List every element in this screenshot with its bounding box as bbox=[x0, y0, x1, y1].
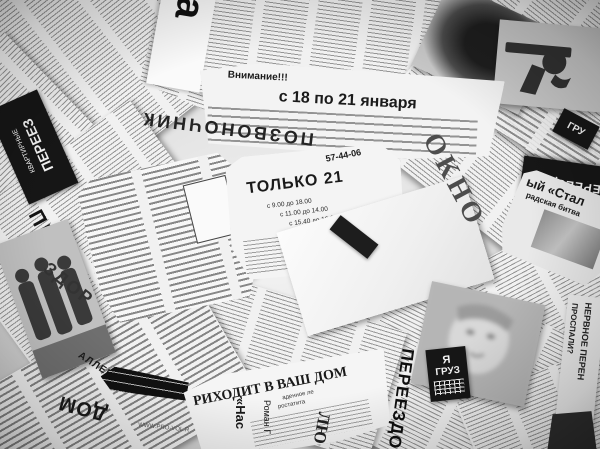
date-range-headline: с 18 по 21 января bbox=[278, 88, 417, 113]
prihodit-sub2: ростатита bbox=[277, 399, 305, 410]
phone-number: 57-44-06 bbox=[325, 147, 362, 164]
revolver-icon bbox=[493, 19, 600, 112]
gruz-label: ГРУЗ bbox=[435, 365, 461, 379]
ya-label: Я bbox=[442, 354, 451, 367]
calendar-grid bbox=[434, 378, 465, 395]
gru-label: ГРУ bbox=[565, 120, 586, 138]
newspaper-collage-photo: осква КВАРТИРНЫЕ ПЕРЕЕЗ Внимание!!! с 18… bbox=[0, 0, 600, 449]
tolko-headline: ТОЛЬКО 21 bbox=[246, 169, 345, 199]
attention-headline: Внимание!!! bbox=[227, 70, 287, 84]
nas-vertical-label: «Нас bbox=[233, 398, 248, 429]
revolver-photo-clipping bbox=[493, 19, 600, 112]
article-photo bbox=[531, 209, 600, 269]
roman-vertical-label: Роман Г bbox=[262, 400, 272, 434]
prospali-label: ПРОСПАЛИ? bbox=[565, 303, 579, 355]
ya-gruz-ad-box: Я ГРУЗ bbox=[425, 346, 470, 402]
